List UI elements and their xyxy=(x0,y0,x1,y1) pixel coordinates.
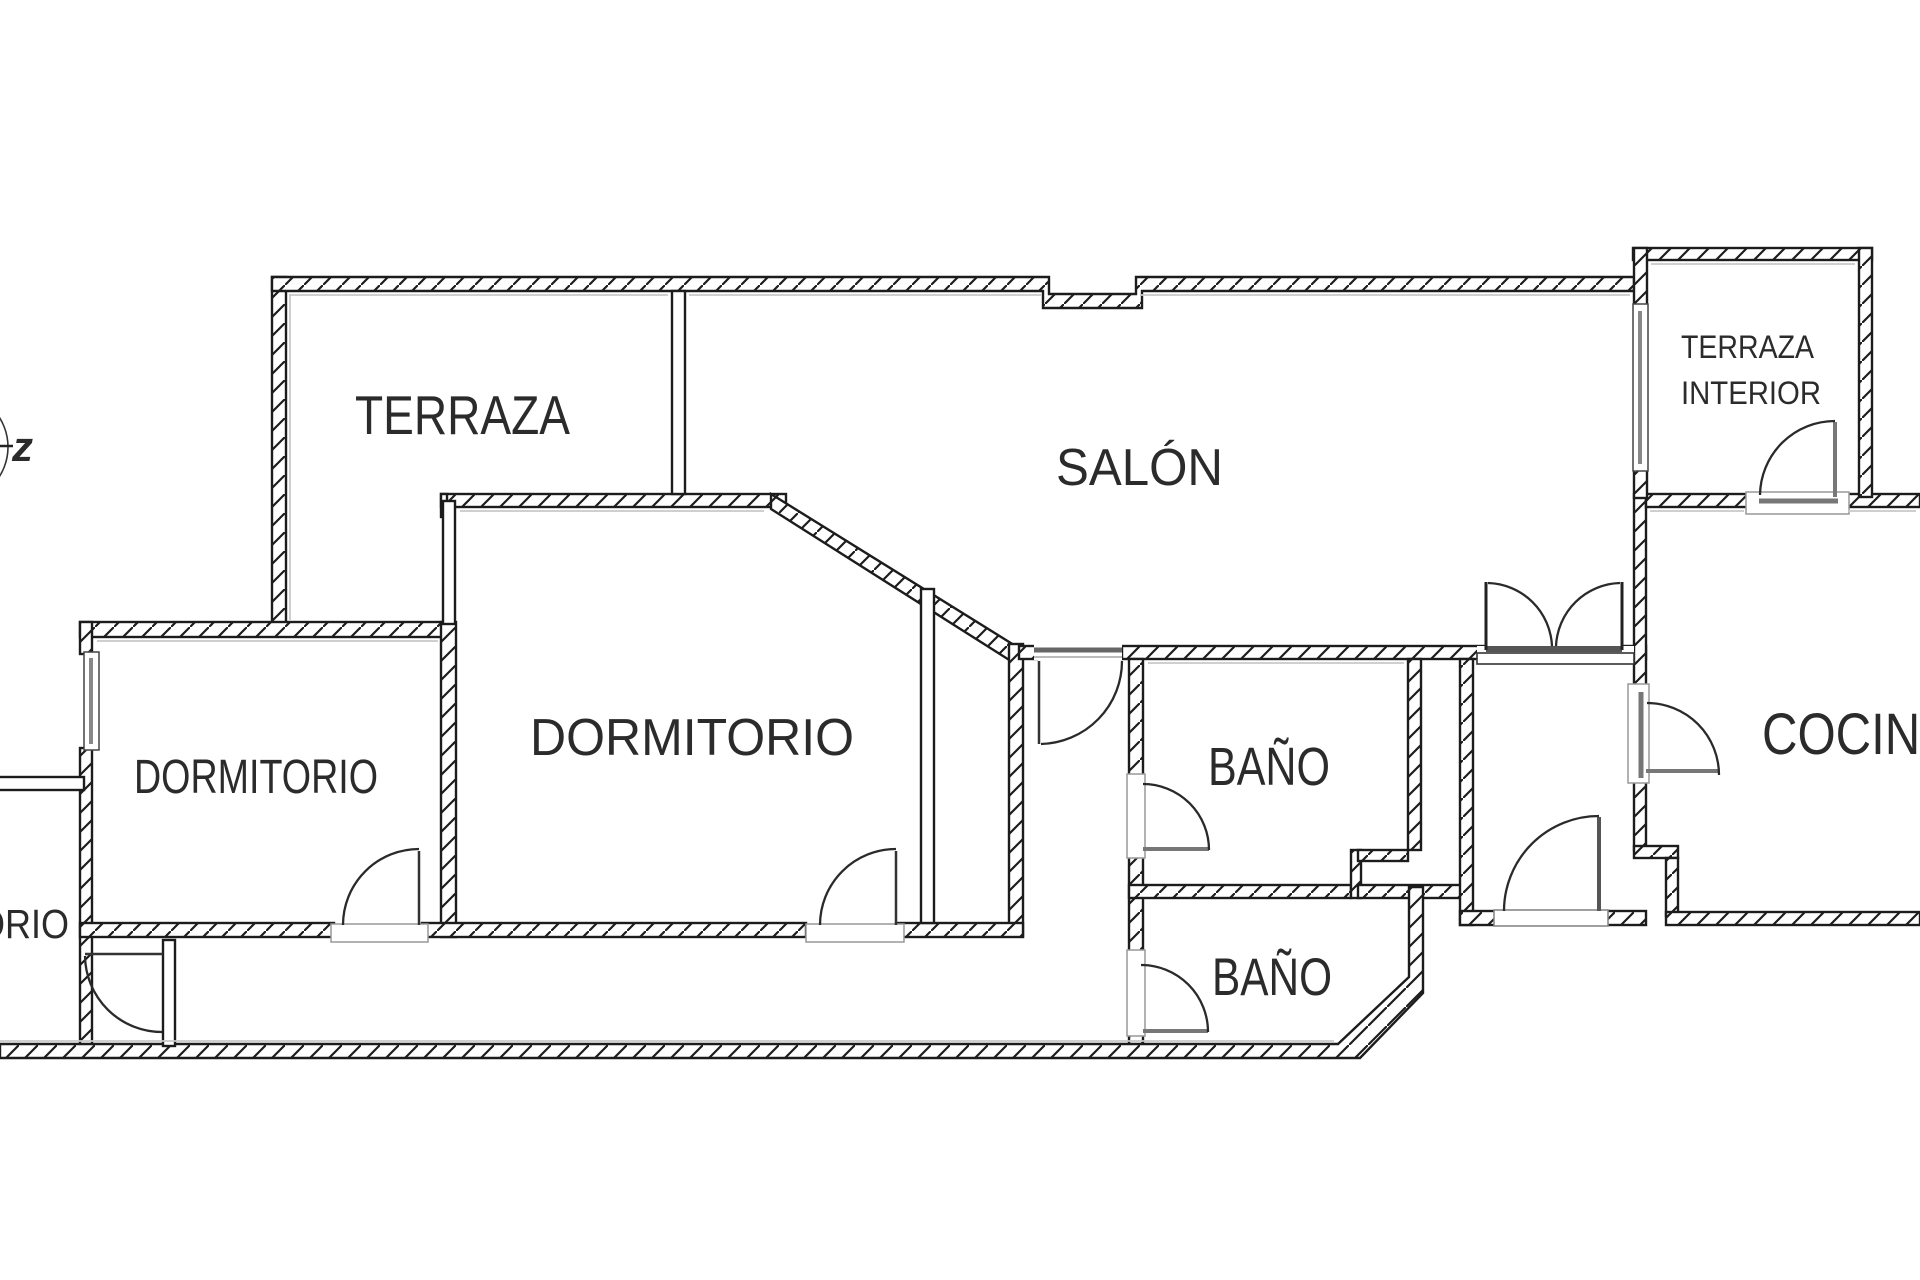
svg-text:DORMITORIO: DORMITORIO xyxy=(530,709,854,767)
svg-text:ORIO: ORIO xyxy=(0,901,69,947)
svg-text:TERRAZA: TERRAZA xyxy=(1681,329,1815,365)
svg-text:BAÑO: BAÑO xyxy=(1208,737,1330,797)
svg-text:DORMITORIO: DORMITORIO xyxy=(134,751,378,804)
svg-text:SALÓN: SALÓN xyxy=(1056,439,1223,497)
svg-text:BAÑO: BAÑO xyxy=(1212,948,1332,1007)
svg-text:TERRAZA: TERRAZA xyxy=(355,384,570,446)
svg-text:INTERIOR: INTERIOR xyxy=(1681,375,1821,411)
svg-text:z: z xyxy=(11,423,33,470)
svg-text:COCINA: COCINA xyxy=(1762,702,1920,767)
